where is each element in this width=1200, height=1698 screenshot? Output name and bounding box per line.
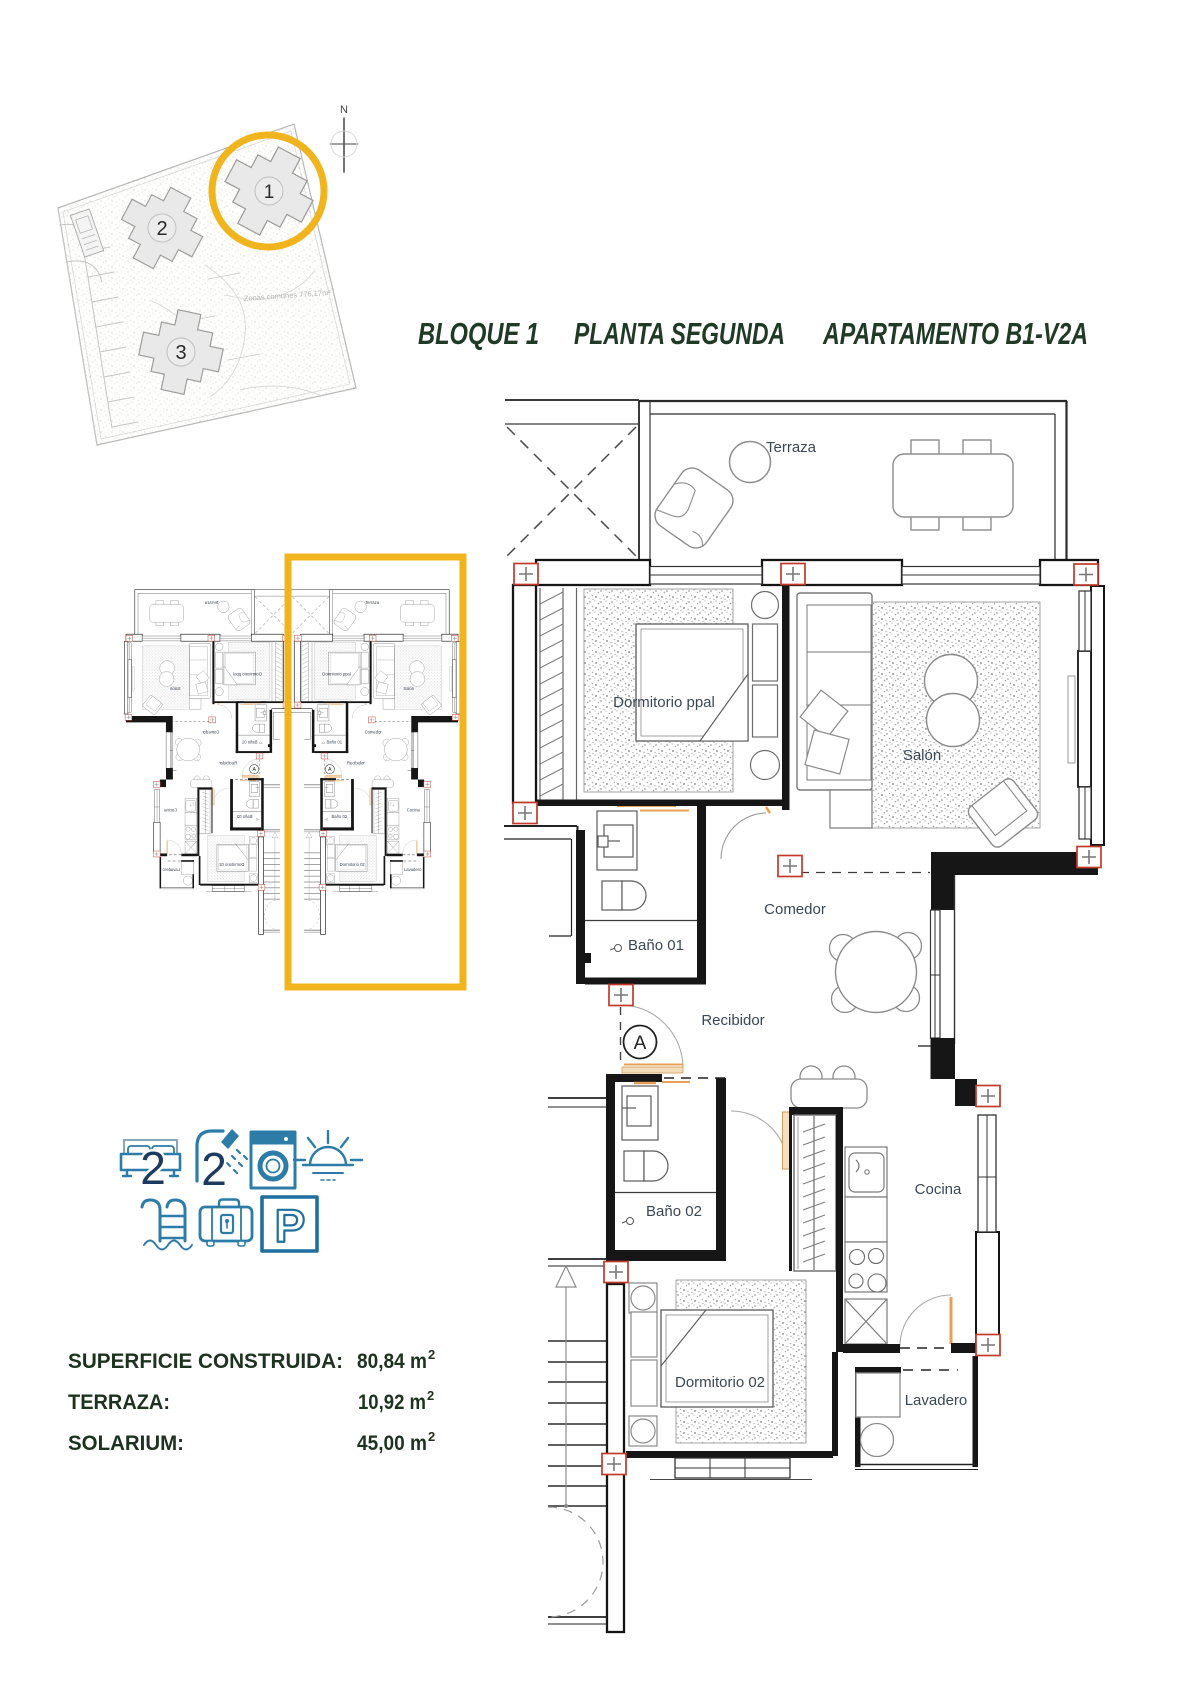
svg-text:TERRAZA:: TERRAZA: <box>68 1391 170 1414</box>
svg-text:Baño 01: Baño 01 <box>628 937 684 954</box>
svg-text:2: 2 <box>156 218 167 240</box>
svg-text:Recibidor: Recibidor <box>701 1012 764 1029</box>
svg-text:SUPERFICIE CONSTRUIDA:: SUPERFICIE CONSTRUIDA: <box>68 1350 343 1373</box>
svg-text:Cocina: Cocina <box>915 1181 962 1198</box>
svg-text:Baño 02: Baño 02 <box>646 1203 702 1220</box>
svg-text:3: 3 <box>175 342 186 364</box>
svg-text:1: 1 <box>264 182 275 203</box>
svg-text:2: 2 <box>428 1347 435 1362</box>
svg-text:2: 2 <box>201 1143 227 1195</box>
svg-text:2: 2 <box>427 1388 434 1403</box>
svg-text:2: 2 <box>428 1429 435 1444</box>
svg-text:N: N <box>340 104 348 116</box>
svg-text:P: P <box>275 1200 306 1252</box>
svg-text:PLANTA SEGUNDA: PLANTA SEGUNDA <box>574 316 785 351</box>
svg-text:BLOQUE 1: BLOQUE 1 <box>418 316 539 351</box>
svg-text:Dormitorio 02: Dormitorio 02 <box>675 1374 765 1391</box>
svg-text:80,84 m: 80,84 m <box>357 1350 427 1373</box>
svg-text:APARTAMENTO B1-V2A: APARTAMENTO B1-V2A <box>822 316 1088 351</box>
svg-text:Lavadero: Lavadero <box>905 1392 968 1409</box>
svg-text:10,92 m: 10,92 m <box>358 1391 426 1414</box>
svg-text:A: A <box>634 1033 647 1054</box>
svg-text:45,00 m: 45,00 m <box>357 1432 427 1455</box>
svg-text:2: 2 <box>140 1142 166 1194</box>
svg-text:Salón: Salón <box>903 747 941 764</box>
svg-text:Comedor: Comedor <box>764 901 826 918</box>
svg-text:SOLARIUM:: SOLARIUM: <box>68 1432 184 1455</box>
svg-text:Terraza: Terraza <box>766 439 817 456</box>
svg-text:Dormitorio ppal: Dormitorio ppal <box>613 694 715 711</box>
